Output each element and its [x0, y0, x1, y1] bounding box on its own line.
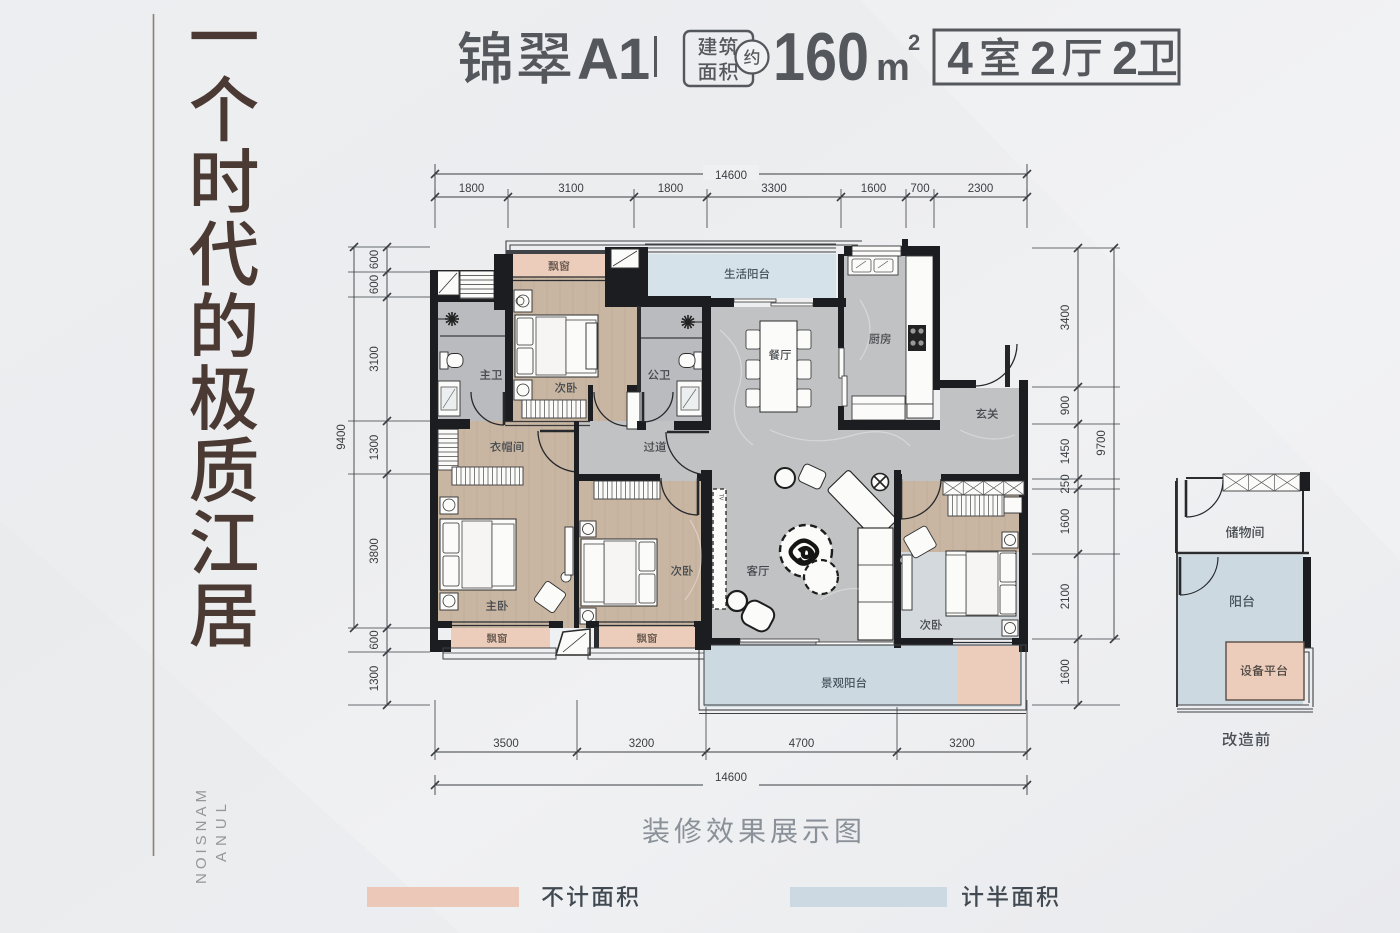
- svg-text:3100: 3100: [558, 183, 584, 195]
- svg-text:1800: 1800: [658, 183, 684, 195]
- svg-text:4700: 4700: [789, 738, 815, 750]
- svg-text:14600: 14600: [715, 772, 747, 784]
- svg-text:3500: 3500: [493, 738, 519, 750]
- svg-text:9400: 9400: [336, 424, 348, 450]
- svg-text:A1: A1: [577, 27, 649, 92]
- svg-text:2: 2: [1112, 32, 1138, 84]
- svg-text:700: 700: [910, 183, 929, 195]
- svg-text:250: 250: [1060, 474, 1072, 493]
- svg-text:NOISNAM: NOISNAM: [193, 786, 210, 884]
- svg-text:600: 600: [369, 275, 381, 294]
- svg-text:1600: 1600: [1060, 509, 1072, 535]
- svg-text:600: 600: [369, 250, 381, 269]
- svg-text:14600: 14600: [715, 170, 747, 182]
- svg-text:ANUL: ANUL: [213, 798, 230, 862]
- svg-text:3800: 3800: [369, 538, 381, 564]
- svg-text:1600: 1600: [1060, 659, 1072, 685]
- svg-text:1300: 1300: [369, 666, 381, 692]
- svg-text:m: m: [876, 47, 910, 89]
- svg-text:1450: 1450: [1060, 439, 1072, 465]
- svg-text:4: 4: [947, 32, 973, 84]
- svg-text:2: 2: [908, 30, 920, 55]
- svg-text:3400: 3400: [1060, 305, 1072, 331]
- svg-text:TV: TV: [718, 494, 724, 501]
- svg-text:1800: 1800: [459, 183, 485, 195]
- svg-text:900: 900: [1060, 396, 1072, 415]
- svg-text:2300: 2300: [968, 183, 994, 195]
- svg-text:3200: 3200: [949, 738, 975, 750]
- svg-text:3300: 3300: [761, 183, 787, 195]
- svg-text:3100: 3100: [369, 346, 381, 372]
- svg-text:9700: 9700: [1096, 430, 1108, 456]
- svg-text:2: 2: [1030, 32, 1056, 84]
- svg-text:1300: 1300: [369, 435, 381, 461]
- svg-text:2100: 2100: [1060, 584, 1072, 610]
- svg-text:600: 600: [369, 630, 381, 649]
- svg-text:3200: 3200: [629, 738, 655, 750]
- svg-text:1600: 1600: [861, 183, 887, 195]
- svg-text:160: 160: [773, 19, 869, 95]
